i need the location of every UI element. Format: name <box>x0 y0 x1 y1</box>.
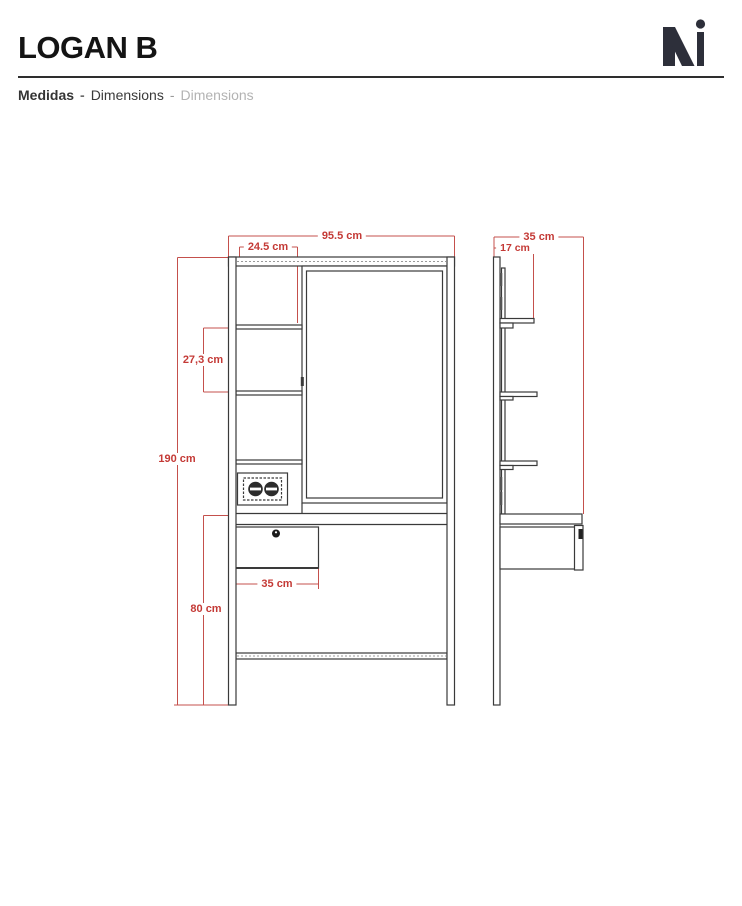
front-right-leg <box>447 257 455 705</box>
front-view-drawing <box>229 257 455 705</box>
front-shelf-3 <box>236 460 302 464</box>
power-socket <box>238 473 288 505</box>
drawer-lock <box>272 530 280 538</box>
technical-drawing <box>0 0 742 906</box>
side-shelf-1 <box>500 319 534 324</box>
side-shelf-2 <box>500 392 537 397</box>
front-shelf-1 <box>236 325 302 329</box>
front-left-leg <box>229 257 237 705</box>
dim-front-shelf-width: 24.5 cm <box>244 241 292 253</box>
dim-front-total-width: 95.5 cm <box>318 230 366 242</box>
side-drawer-body <box>500 527 575 569</box>
mirror-hinge <box>301 377 304 386</box>
side-drawer-handle <box>579 529 583 539</box>
mirror <box>302 266 447 503</box>
side-view-drawing <box>494 257 584 705</box>
dim-side-shelf-depth: 17 cm <box>496 242 534 254</box>
dim-front-drawer-width: 35 cm <box>257 578 296 590</box>
front-shelf-2 <box>236 391 302 395</box>
side-back-panel <box>494 257 501 705</box>
dim-front-lower-height: 80 cm <box>186 603 225 615</box>
side-desk-top <box>500 514 582 524</box>
dim-front-total-height: 190 cm <box>154 453 199 465</box>
dim-front-shelf-spacing: 27,3 cm <box>179 354 227 366</box>
side-shelf-3 <box>500 461 537 466</box>
dimension-sheet: LOGAN B Medidas-Dimensions-Dimensions <box>0 0 742 906</box>
